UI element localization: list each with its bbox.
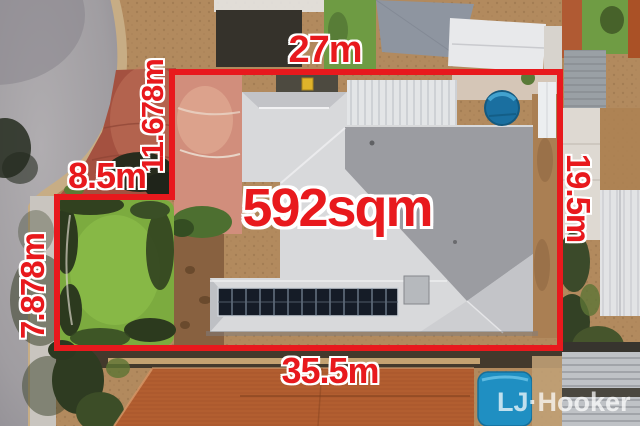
neighbor-tree: [600, 6, 624, 34]
street-tree: [2, 152, 38, 184]
lawn-highlight: [70, 215, 160, 325]
patio-roof-corrugation: [347, 80, 457, 125]
fence-line: [108, 358, 480, 364]
eave-shadow: [206, 331, 538, 336]
bark-detail: [185, 266, 195, 274]
aerial-scene: [0, 0, 640, 426]
tree-shadow: [18, 210, 54, 254]
neighbor-terracotta-sliver: [628, 0, 640, 58]
neighbor-dirt-yard: [600, 108, 640, 190]
garden-border: [146, 210, 174, 290]
roof-vent: [370, 141, 375, 146]
roof-divider-shadow: [562, 388, 640, 397]
roof-north-face: [242, 92, 347, 108]
round-pool-spa: [485, 91, 519, 125]
aerial-property-photo: 27m 11.678m 8.5m 7.878m 19.5m 35.5m 592s…: [0, 0, 640, 426]
garden-border: [124, 318, 176, 342]
neighbor-dark-structure: [216, 10, 302, 67]
bark-detail: [199, 296, 211, 304]
vegetation: [580, 284, 600, 316]
trees: [106, 358, 130, 378]
dirt-shadow: [534, 239, 550, 291]
yellow-object: [302, 78, 313, 90]
grass-shadow: [328, 12, 348, 48]
roof-ac-unit: [404, 276, 429, 304]
neighbor-driveway: [562, 108, 600, 240]
dirt-shadow: [537, 138, 553, 182]
roof-vent: [453, 240, 457, 244]
bark-detail: [180, 321, 190, 329]
paving-highlight: [177, 86, 233, 154]
paving-strip: [532, 356, 562, 426]
neighbor-concrete: [544, 26, 562, 72]
neighbor-orange-wall: [562, 0, 582, 58]
solar-panel-array: [218, 288, 398, 316]
garden-border: [130, 201, 170, 219]
shed-corrugation: [564, 50, 606, 108]
